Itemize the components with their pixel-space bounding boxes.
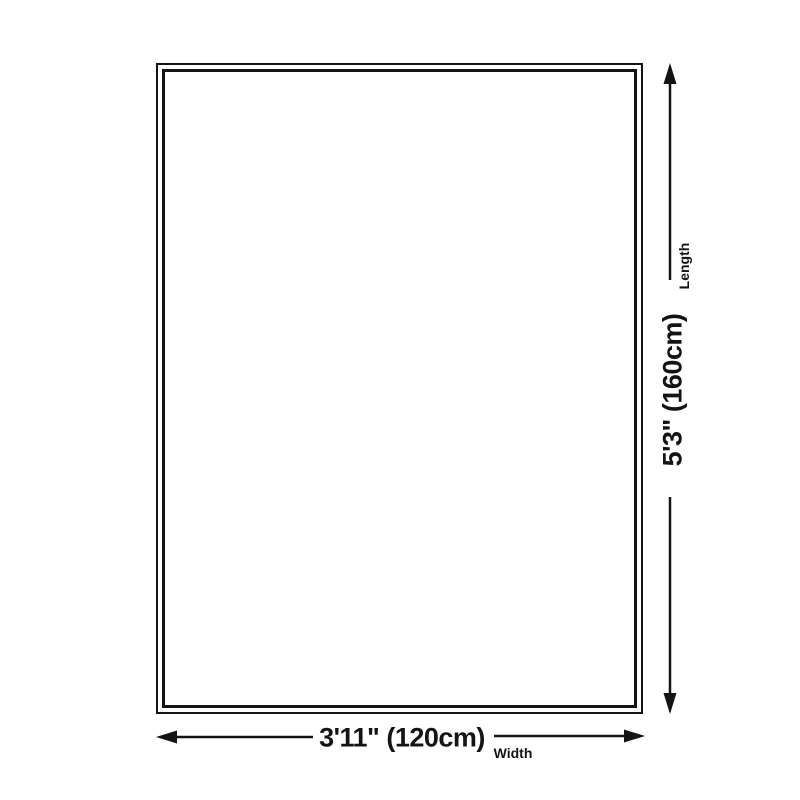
length-label: Length [677,243,691,290]
arrow-down-icon [664,693,677,714]
length-value: 5'3" (160cm) [660,314,687,467]
arrow-left-icon [156,731,177,744]
width-label: Width [494,746,533,760]
dimension-diagram: 5'3" (160cm) Length 3'11" (120cm) Width [0,0,800,800]
rug-inner-border [162,69,637,708]
width-value: 3'11" (120cm) [319,725,485,752]
arrow-right-icon [624,730,645,743]
arrow-up-icon [664,63,677,84]
rug-outline [156,63,643,714]
